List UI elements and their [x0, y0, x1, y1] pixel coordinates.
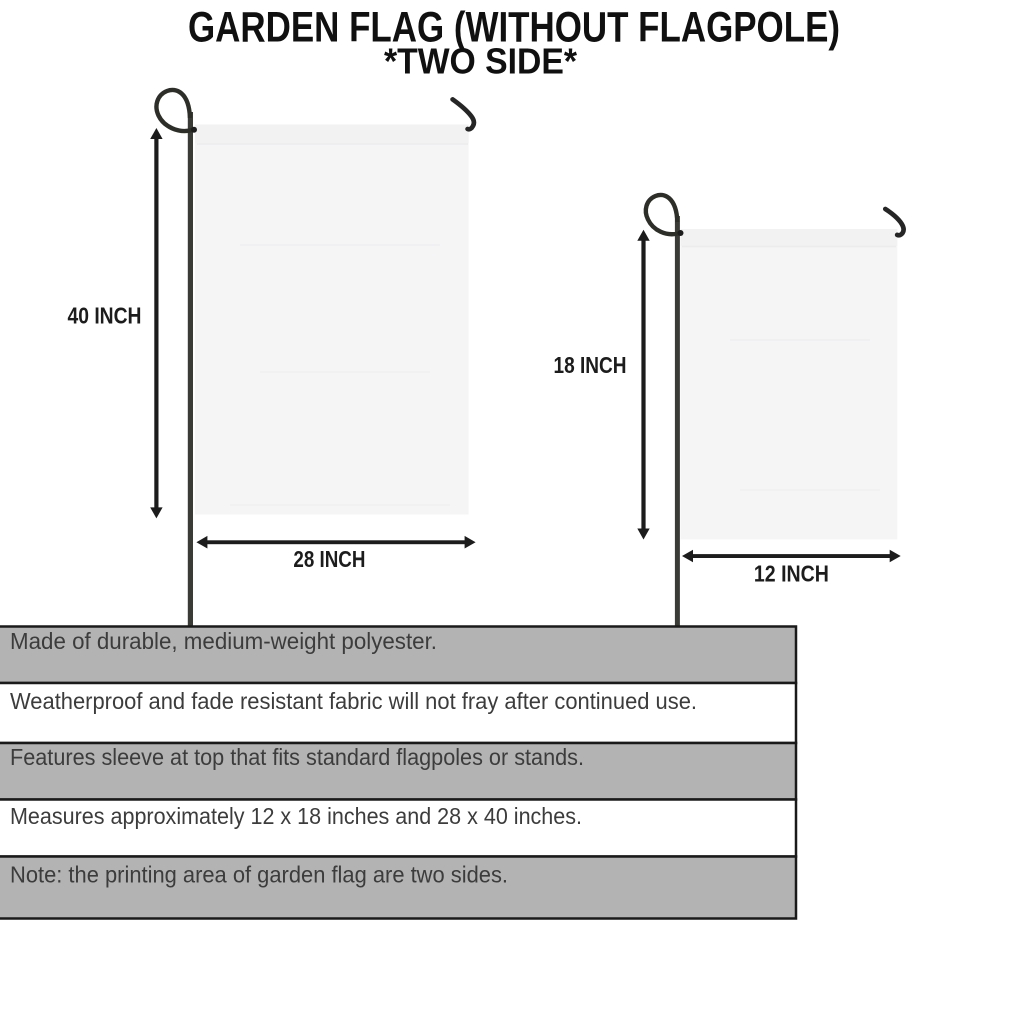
svg-text:Measures approximately 12 x 18: Measures approximately 12 x 18 inches an… [10, 803, 582, 829]
svg-text:18 INCH: 18 INCH [554, 352, 627, 378]
svg-text:Made of durable, medium-weight: Made of durable, medium-weight polyester… [10, 628, 437, 654]
svg-text:28 INCH: 28 INCH [293, 546, 365, 572]
svg-text:Note: the printing area of gar: Note: the printing area of garden flag a… [10, 862, 508, 888]
svg-text:*TWO SIDE*: *TWO SIDE* [384, 41, 577, 82]
svg-text:Features sleeve at top that fi: Features sleeve at top that fits standar… [10, 744, 584, 770]
svg-text:12 INCH: 12 INCH [754, 561, 829, 587]
svg-text:Weatherproof and fade resistan: Weatherproof and fade resistant fabric w… [10, 688, 697, 714]
svg-text:40 INCH: 40 INCH [68, 303, 142, 329]
